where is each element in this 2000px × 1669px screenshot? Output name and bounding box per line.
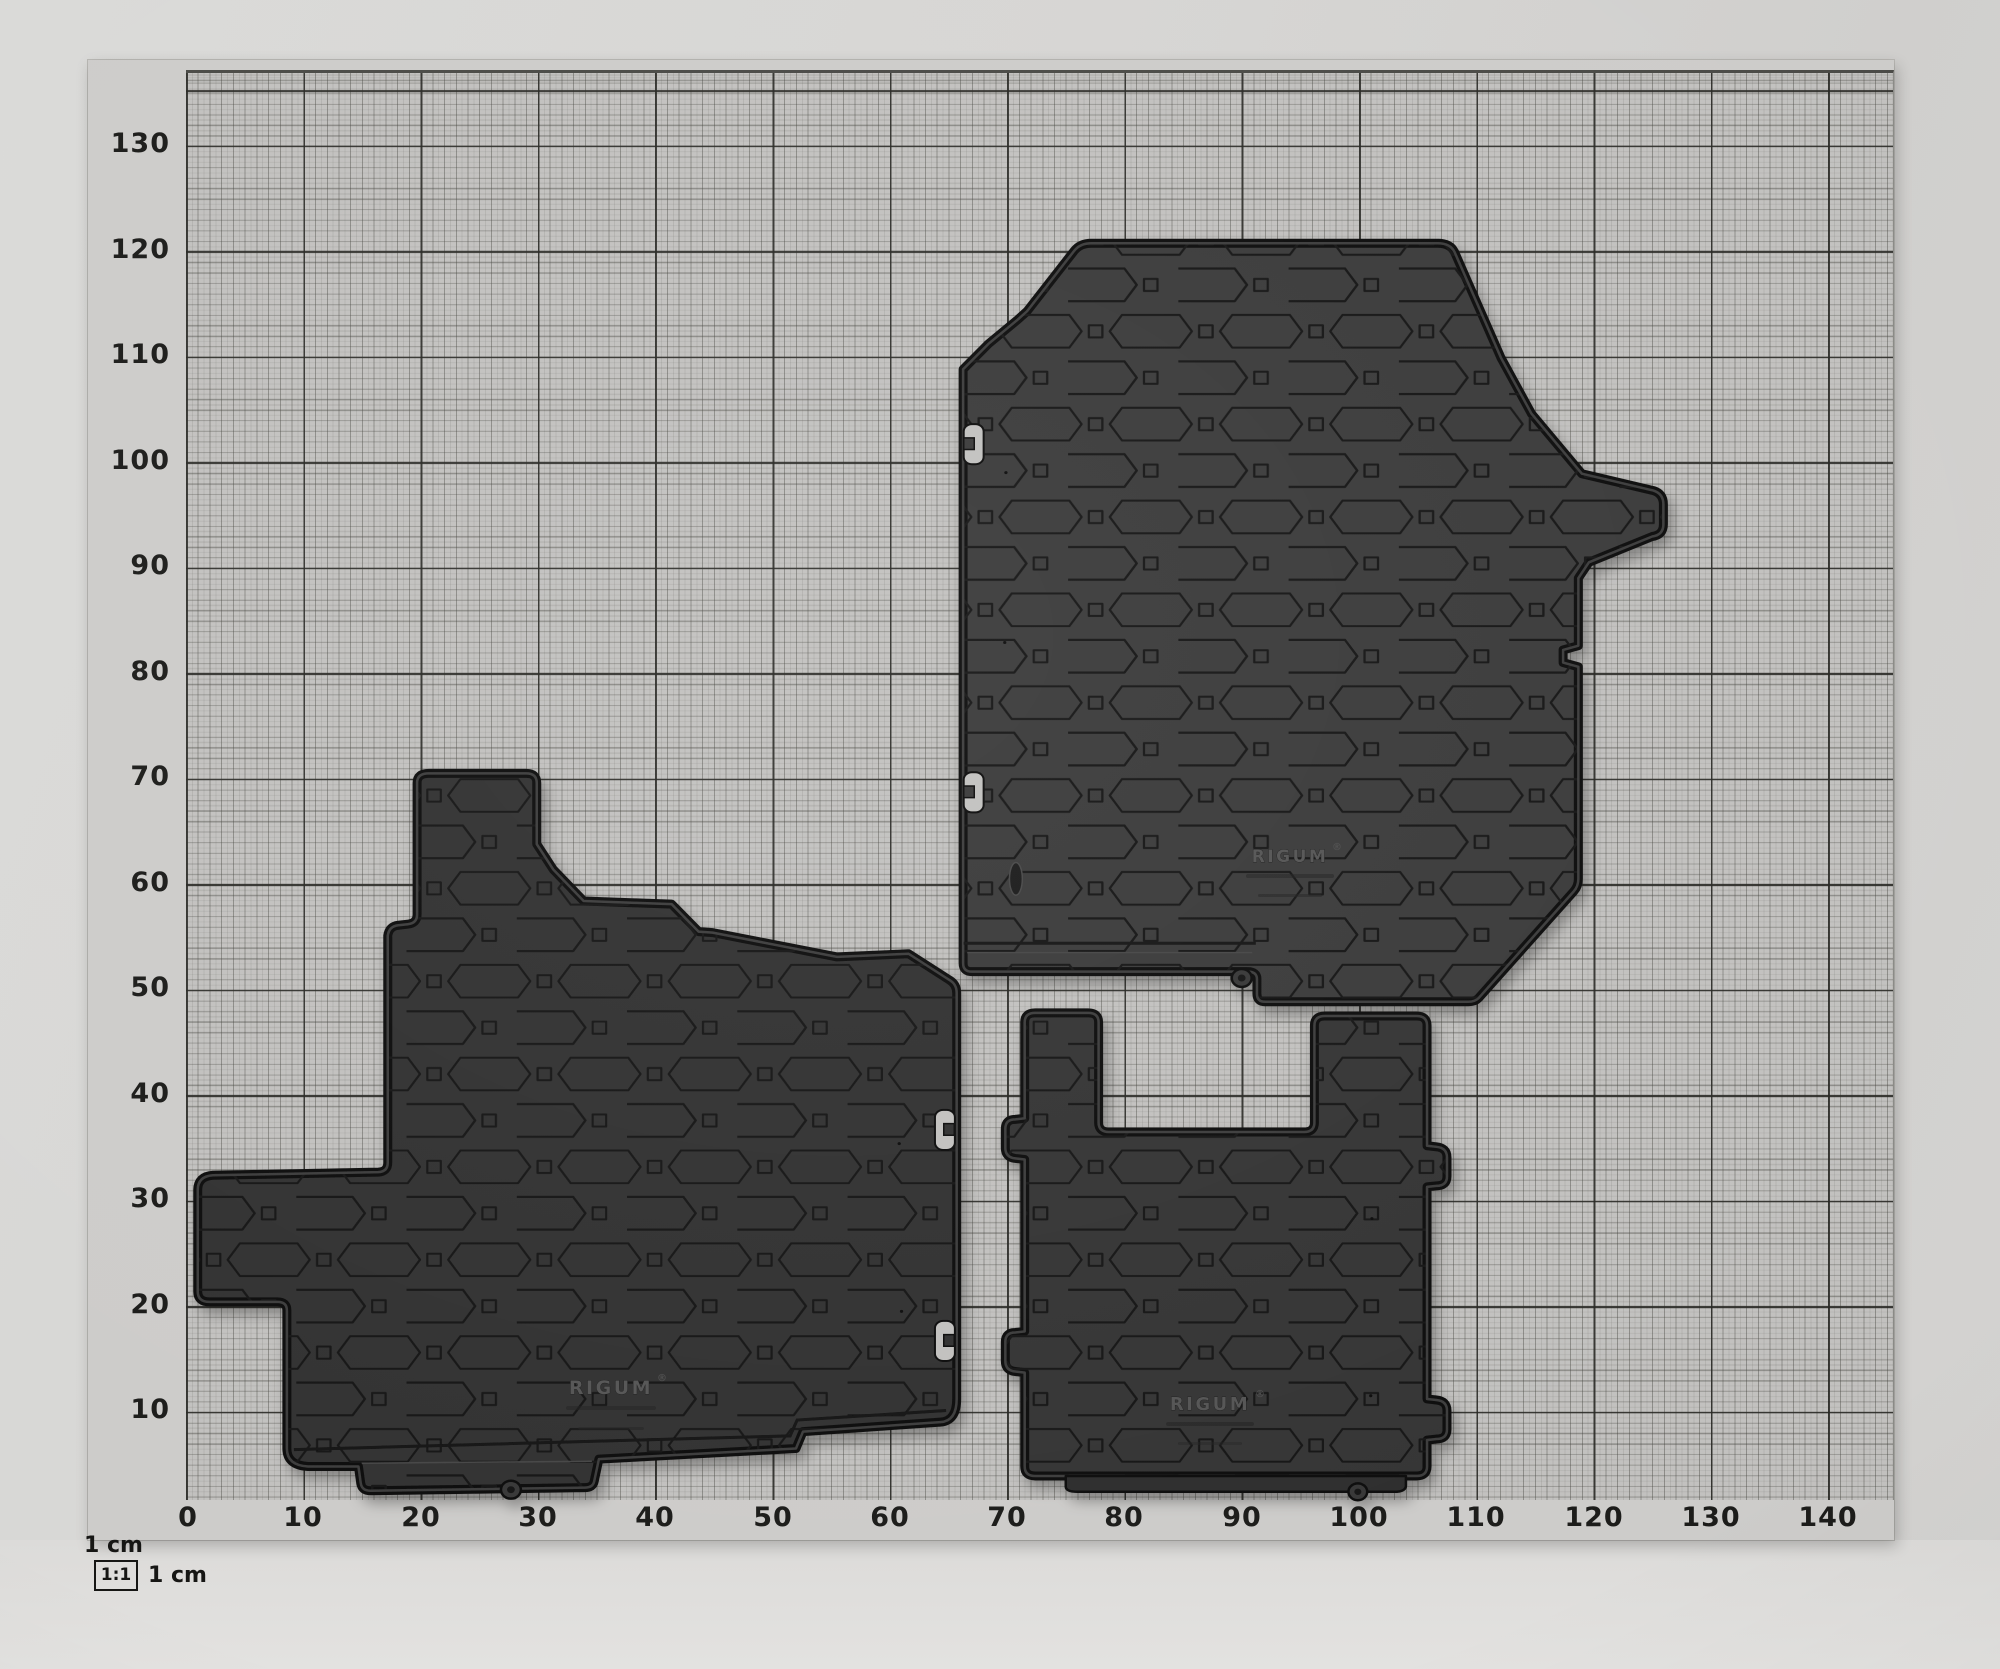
pin-dot [1004, 471, 1007, 474]
registered-mark: ® [1255, 1389, 1265, 1400]
fixing-hook [944, 1124, 955, 1136]
brand-logo: RIGUM [1252, 847, 1329, 867]
fixing-hook [964, 786, 975, 798]
product-photo-stage: 0 10 20 30 40 50 60 70 80 90 100 110 120… [0, 0, 2000, 1669]
embossed-text-line [1246, 874, 1334, 878]
front-left-mat: RIGUM ® [198, 773, 957, 1498]
fixing-hook [964, 438, 975, 450]
embossed-text-line [578, 1427, 644, 1430]
rear-mat: RIGUM ® [1005, 1013, 1447, 1500]
embossed-text-line [1178, 1442, 1242, 1445]
front-right-mat-pattern [963, 243, 1663, 1002]
registered-mark: ® [657, 1373, 667, 1384]
embossed-text-line [566, 1406, 656, 1410]
pin-dot [1003, 641, 1006, 644]
embossed-text-line [1166, 1422, 1254, 1426]
brand-logo: RIGUM [1170, 1394, 1250, 1415]
pin-dot [1370, 1217, 1373, 1220]
grommet-hole [507, 1486, 515, 1493]
anchor-hole [1009, 862, 1022, 895]
pin-dot [1369, 1394, 1372, 1397]
grommet-hole [1238, 975, 1246, 982]
fixing-hook [944, 1335, 955, 1347]
registered-mark: ® [1332, 842, 1342, 853]
pin-dot [898, 1142, 901, 1145]
floor-mats-layer: RIGUM ® RIGUM ® [0, 0, 2000, 1669]
embossed-text-line [1258, 894, 1322, 897]
grommet-hole [1354, 1489, 1361, 1495]
front-right-mat: RIGUM ® [963, 243, 1663, 1002]
brand-logo: RIGUM [569, 1377, 653, 1399]
pin-dot [900, 1310, 903, 1313]
